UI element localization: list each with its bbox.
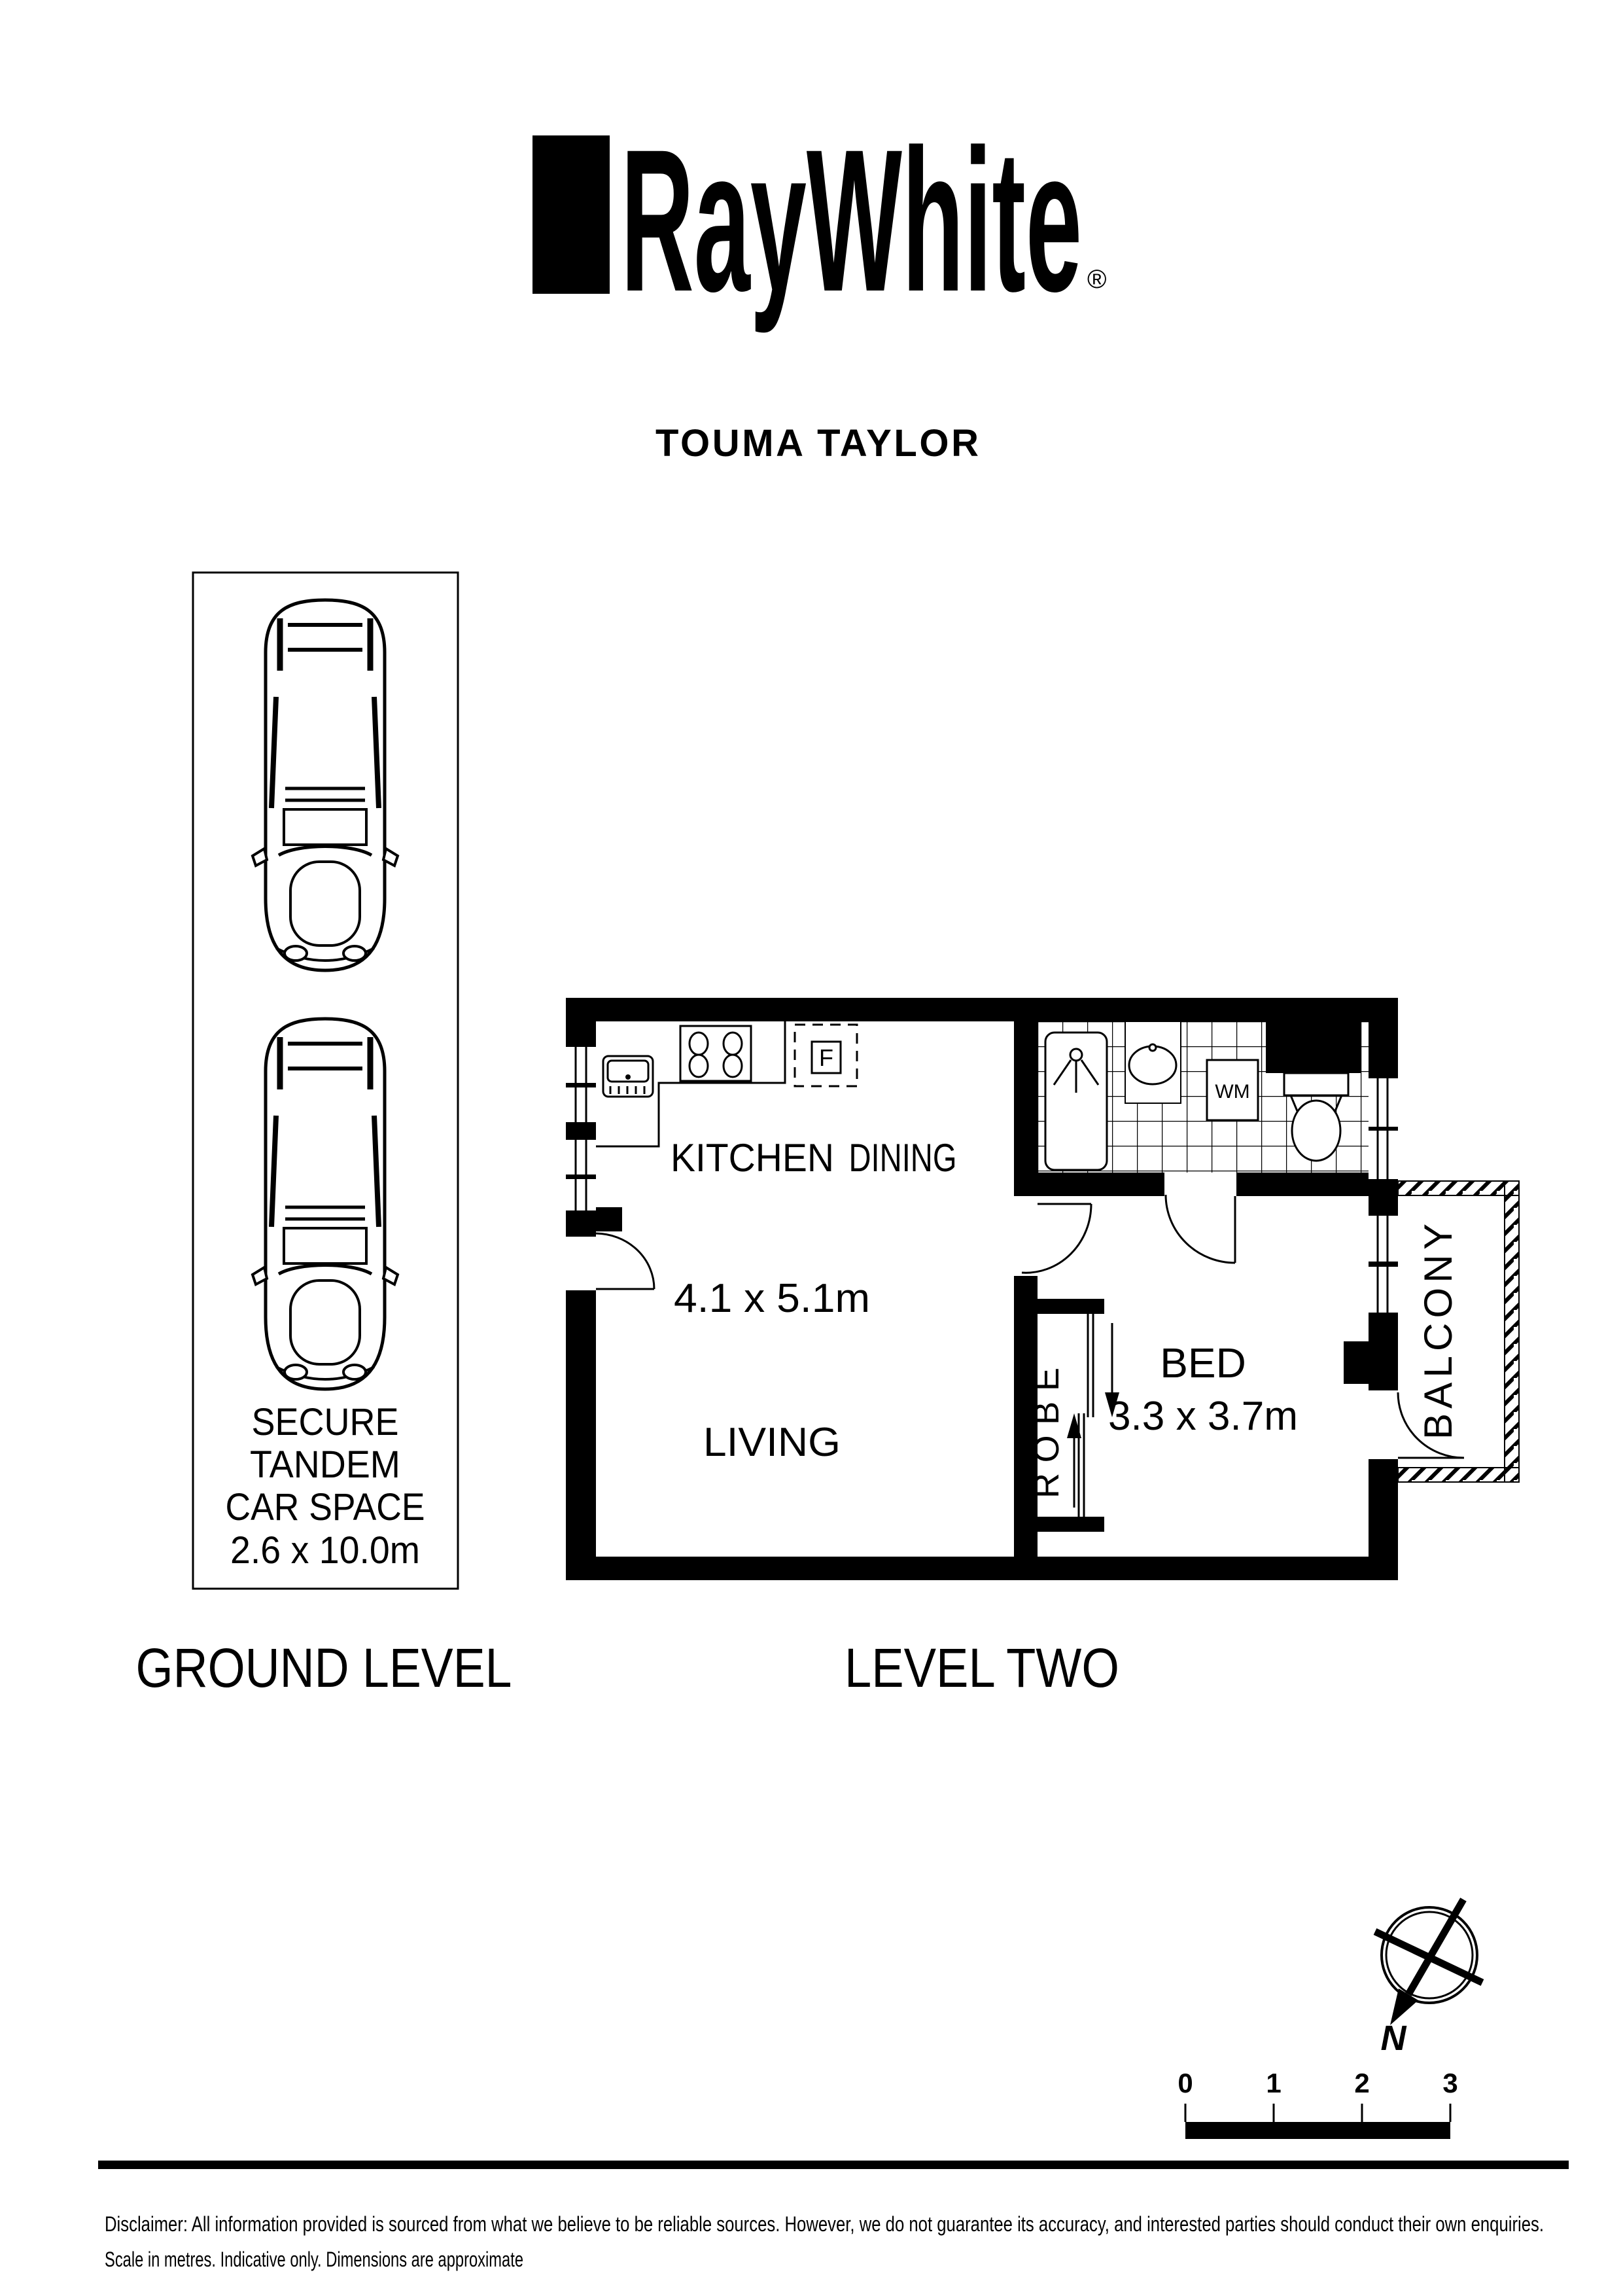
- shower-icon: [1045, 1033, 1107, 1170]
- divider-rule: [98, 2161, 1569, 2169]
- scale-tick-label-2: 2: [1354, 2068, 1369, 2098]
- floorplan-drawing: RayWhite ® TOUMA TAYLOR SECURE TANDEM CA…: [0, 0, 1623, 2296]
- balcony-label: BALCONY: [1416, 1224, 1460, 1439]
- fridge-icon: F: [795, 1025, 857, 1086]
- registered-trademark-icon: ®: [1087, 265, 1106, 294]
- car-top-view-icon: [253, 1019, 398, 1389]
- stove-icon: [680, 1026, 751, 1081]
- washing-machine-box: WM: [1207, 1060, 1258, 1120]
- car-space-label-line3: CAR SPACE: [226, 1486, 425, 1528]
- fridge-label: F: [819, 1044, 833, 1071]
- ground-level-plan: SECURE TANDEM CAR SPACE 2.6 x 10.0m GROU…: [136, 573, 512, 1699]
- bathroom-door-arc: [1166, 1195, 1235, 1263]
- window: [566, 1047, 596, 1083]
- window: [566, 1140, 596, 1174]
- disclaimer-line2: Scale in metres. Indicative only. Dimens…: [105, 2248, 523, 2271]
- kitchen-dining-dimensions: 4.1 x 5.1m: [674, 1276, 870, 1321]
- wm-label: WM: [1215, 1081, 1249, 1103]
- scale-bar: 0 1 2 3: [1178, 2068, 1457, 2139]
- ground-level-label: GROUND LEVEL: [136, 1637, 512, 1699]
- living-label: LIVING: [703, 1420, 841, 1465]
- raywhite-logo-text: RayWhite: [621, 107, 1082, 335]
- window: [1369, 1078, 1398, 1127]
- office-name: TOUMA TAYLOR: [655, 422, 979, 465]
- north-label: N: [1381, 2019, 1407, 2058]
- compass-icon: N: [1375, 1899, 1482, 2058]
- window: [566, 1087, 596, 1122]
- car-space-dimensions: 2.6 x 10.0m: [230, 1529, 420, 1572]
- bed-dimensions: 3.3 x 3.7m: [1108, 1394, 1298, 1439]
- car-space-label-line2: TANDEM: [250, 1443, 400, 1486]
- window: [1369, 1131, 1398, 1179]
- brand-header: RayWhite ® TOUMA TAYLOR: [532, 107, 1106, 465]
- bed-label: BED: [1160, 1339, 1246, 1386]
- scale-tick-label-3: 3: [1442, 2068, 1457, 2098]
- level-two-label: LEVEL TWO: [845, 1637, 1119, 1699]
- car-space-label-line1: SECURE: [252, 1401, 399, 1443]
- window: [566, 1179, 596, 1210]
- kitchen-label: KITCHEN: [671, 1136, 834, 1180]
- kitchen-sink-icon: [603, 1056, 653, 1097]
- disclaimer-line1: Disclaimer: All information provided is …: [105, 2212, 1544, 2236]
- scale-tick-label-1: 1: [1266, 2068, 1281, 2098]
- level-two-plan: WM: [566, 998, 1519, 1699]
- dining-label: DINING: [849, 1136, 957, 1180]
- raywhite-logo-block-icon: [532, 135, 610, 294]
- car-top-view-icon: [253, 600, 398, 970]
- basin-icon: [1125, 1021, 1181, 1103]
- floorplan-page: RayWhite ® TOUMA TAYLOR SECURE TANDEM CA…: [0, 0, 1623, 2296]
- window: [1369, 1267, 1398, 1313]
- scale-tick-label-0: 0: [1178, 2068, 1193, 2098]
- entry-door-arc: [596, 1233, 654, 1289]
- window: [1369, 1216, 1398, 1262]
